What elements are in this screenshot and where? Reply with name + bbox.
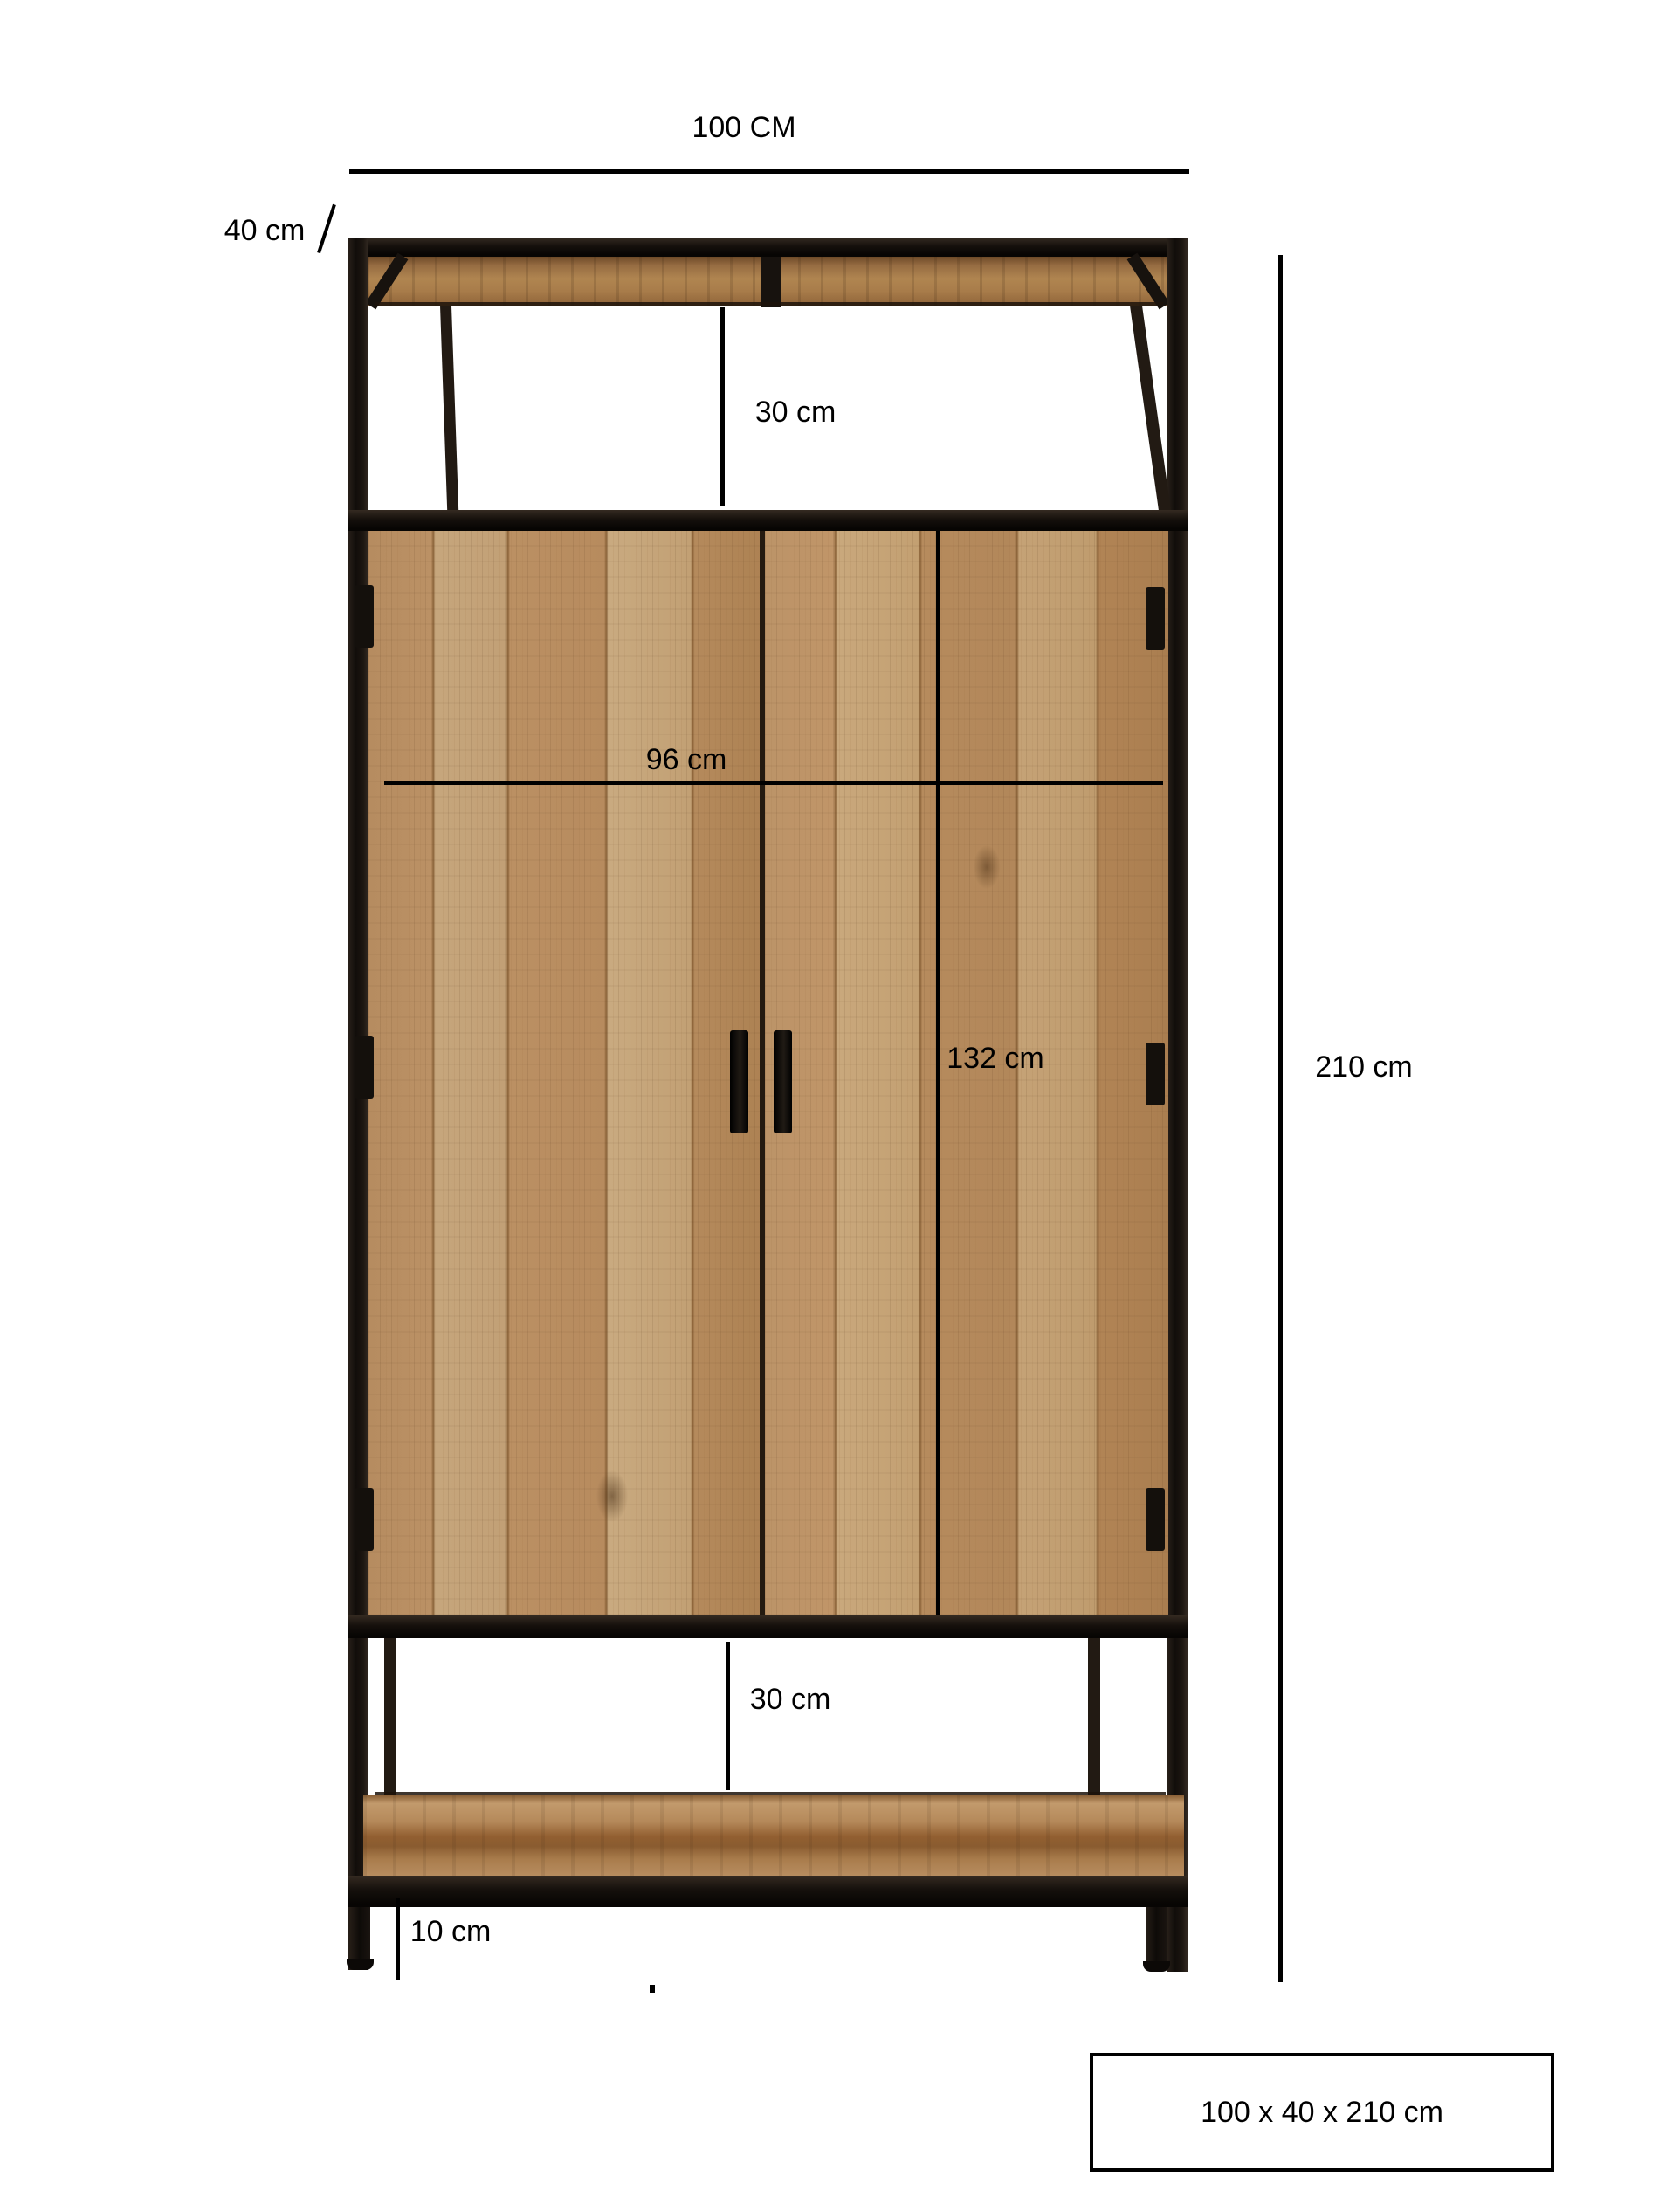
door-center-gap	[760, 531, 765, 1615]
top-gap-label: 30 cm	[743, 395, 848, 430]
left-foot	[347, 1959, 374, 1970]
door-bottom-rail	[348, 1615, 1188, 1638]
right-rear-leg-bottom-section	[1088, 1638, 1100, 1795]
summary-dimensions-box: 100 x 40 x 210 cm	[1090, 2053, 1554, 2172]
top-width-dimension-line	[349, 169, 1189, 174]
bottom-gap-label: 30 cm	[738, 1682, 843, 1718]
left-rear-leg-bottom-section	[384, 1638, 396, 1795]
product-dimension-diagram: 100 CM 40 cm 30 cm 96 cm 132 cm 210 cm 3…	[0, 0, 1680, 2204]
bottom-shelf-panel	[363, 1795, 1184, 1877]
left-door-handle	[730, 1030, 748, 1133]
right-front-post	[1167, 238, 1188, 1972]
bottom-gap-dimension-line	[726, 1642, 730, 1790]
left-rear-leg-top-section	[440, 306, 458, 512]
left-front-leg	[349, 1907, 370, 1965]
door-top-rail	[348, 510, 1188, 531]
inner-width-dimension-line	[384, 781, 1163, 785]
right-door-handle	[774, 1030, 792, 1133]
top-shelf-rear-edge	[375, 302, 1163, 306]
right-door-middle-hinge	[1146, 1043, 1165, 1105]
right-rear-leg-top-section	[1130, 306, 1171, 512]
right-door-top-hinge	[1146, 587, 1165, 650]
right-front-leg	[1146, 1907, 1167, 1966]
left-front-post	[348, 238, 368, 1970]
right-foot	[1143, 1961, 1170, 1972]
left-door-middle-hinge	[355, 1036, 374, 1099]
summary-dimensions-label: 100 x 40 x 210 cm	[1201, 2095, 1443, 2131]
left-door	[368, 531, 761, 1615]
depth-label: 40 cm	[203, 213, 326, 249]
stray-dot	[650, 1985, 655, 1993]
inner-width-label: 96 cm	[634, 742, 739, 778]
bottom-shelf-front-rail	[348, 1876, 1188, 1907]
left-door-bottom-hinge	[355, 1488, 374, 1551]
left-door-top-hinge	[355, 585, 374, 648]
top-width-label: 100 CM	[657, 110, 831, 146]
total-height-dimension-line	[1278, 255, 1283, 1982]
top-shelf-center-strut	[761, 257, 781, 307]
top-gap-dimension-line	[720, 307, 725, 506]
right-door-bottom-hinge	[1146, 1488, 1165, 1551]
door-height-label: 132 cm	[926, 1041, 1065, 1077]
shelf-clearance-label: 10 cm	[398, 1914, 503, 1950]
total-height-label: 210 cm	[1294, 1050, 1434, 1085]
cabinet-top-rail	[348, 238, 1188, 257]
